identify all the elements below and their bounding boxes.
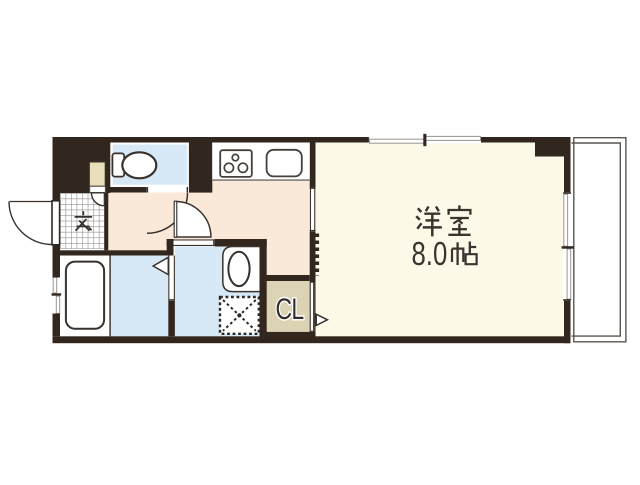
svg-text:8.0: 8.0: [412, 236, 448, 273]
svg-text:CL: CL: [276, 292, 304, 325]
